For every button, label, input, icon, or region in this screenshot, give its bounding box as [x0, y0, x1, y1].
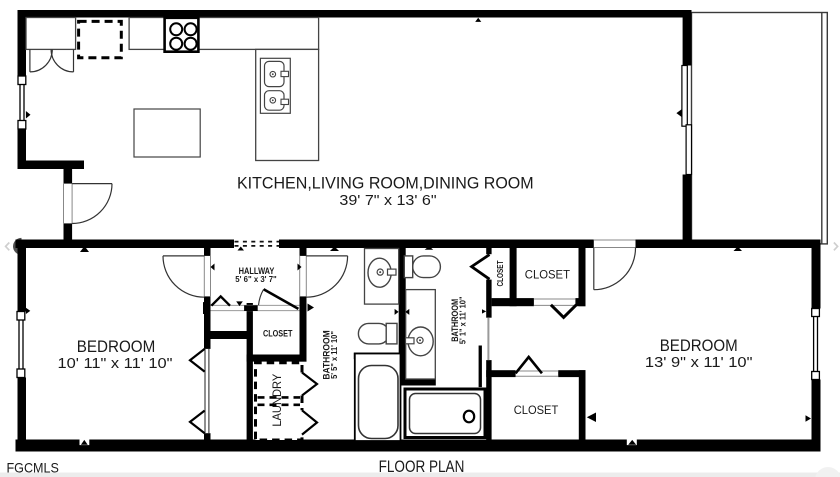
svg-text:CLOSET: CLOSET [496, 260, 505, 286]
svg-text:BEDROOM: BEDROOM [77, 338, 156, 356]
svg-text:5' 5" x 11' 10": 5' 5" x 11' 10" [329, 331, 339, 379]
svg-text:BEDROOM: BEDROOM [660, 337, 738, 355]
svg-text:10' 11" x 11' 10": 10' 11" x 11' 10" [58, 355, 173, 372]
svg-text:5' 6" x 3' 7": 5' 6" x 3' 7" [235, 274, 277, 284]
svg-text:39' 7" x 13' 6": 39' 7" x 13' 6" [339, 192, 436, 209]
svg-text:KITCHEN,LIVING ROOM,DINING ROO: KITCHEN,LIVING ROOM,DINING ROOM [237, 175, 534, 193]
svg-text:5' 1" x 11' 10": 5' 1" x 11' 10" [458, 296, 468, 344]
svg-text:LAUNDRY: LAUNDRY [270, 374, 284, 427]
svg-text:CLOSET: CLOSET [525, 268, 571, 282]
svg-text:CLOSET: CLOSET [514, 403, 559, 417]
svg-text:13' 9" x 11' 10": 13' 9" x 11' 10" [645, 354, 753, 371]
svg-text:CLOSET: CLOSET [263, 329, 293, 339]
